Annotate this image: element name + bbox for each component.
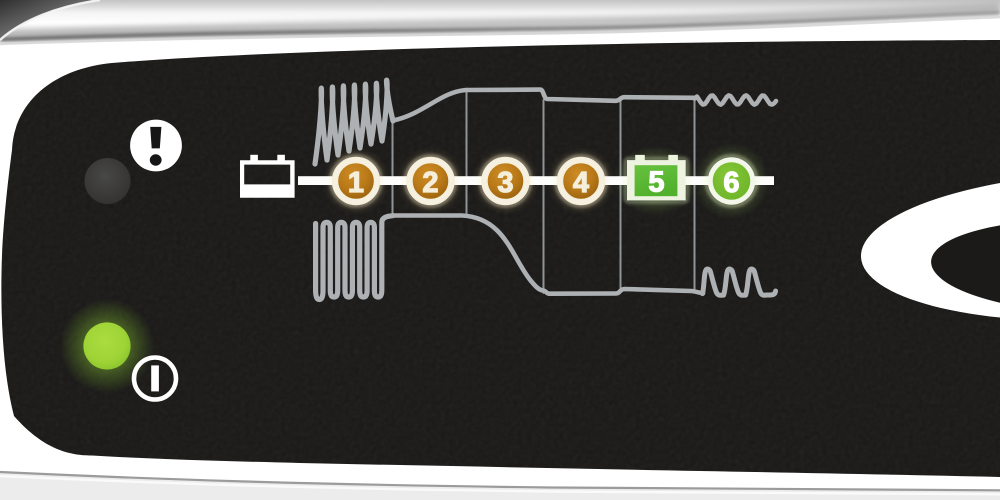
svg-text:2: 2 — [422, 167, 438, 199]
svg-text:6: 6 — [723, 167, 739, 199]
svg-text:1: 1 — [348, 167, 364, 199]
svg-text:5: 5 — [648, 166, 664, 198]
svg-text:4: 4 — [573, 167, 589, 199]
svg-text:3: 3 — [497, 167, 513, 199]
